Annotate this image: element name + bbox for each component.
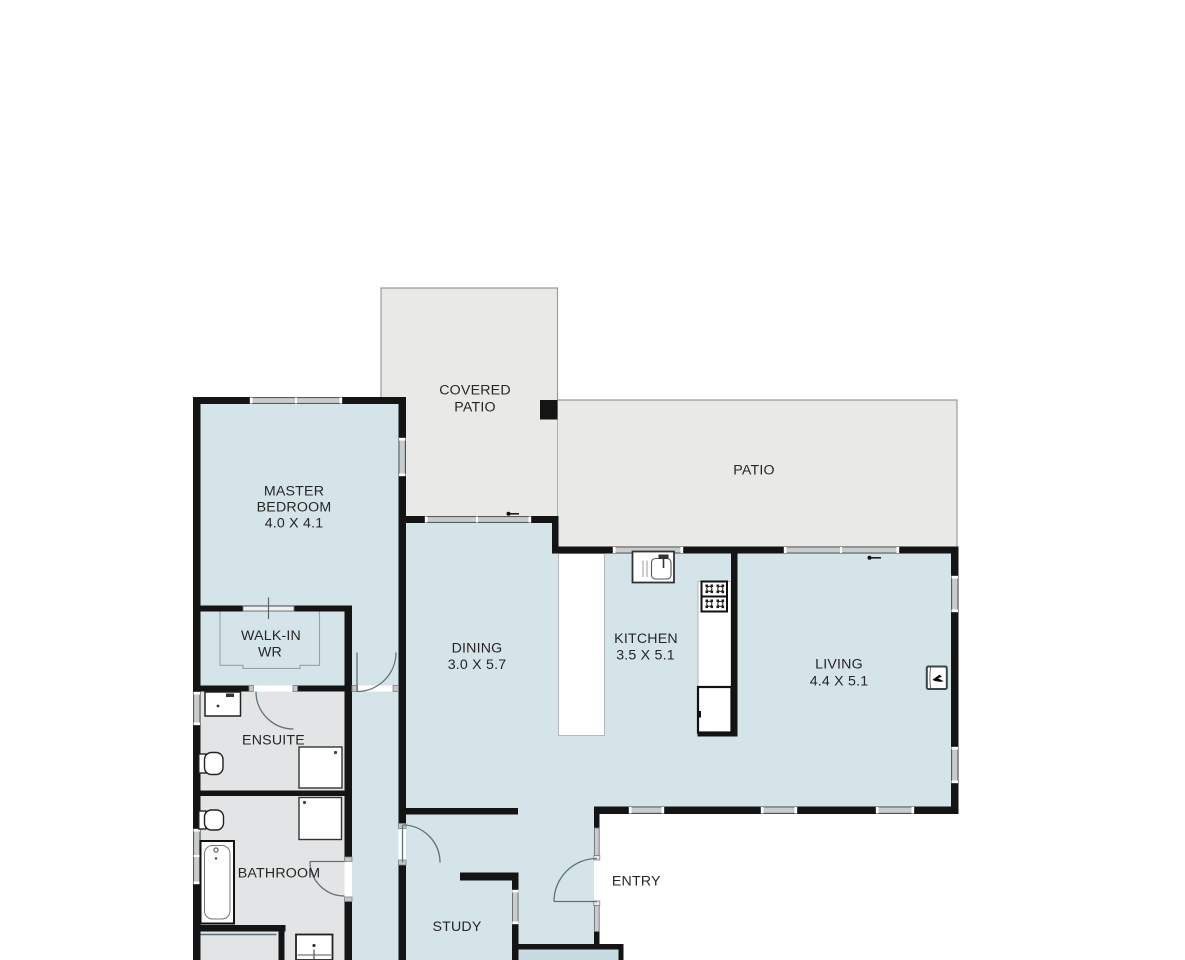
svg-text:PATIO: PATIO xyxy=(454,400,495,416)
svg-text:BATHROOM: BATHROOM xyxy=(238,866,321,882)
svg-text:4.4 X 5.1: 4.4 X 5.1 xyxy=(810,673,869,689)
svg-text:3.0 X 5.7: 3.0 X 5.7 xyxy=(448,657,507,673)
svg-text:PATIO: PATIO xyxy=(733,463,774,479)
svg-text:WALK-IN: WALK-IN xyxy=(241,628,301,644)
svg-text:WR: WR xyxy=(258,645,282,661)
svg-text:DINING: DINING xyxy=(452,641,503,657)
svg-text:ENSUITE: ENSUITE xyxy=(242,733,305,749)
svg-text:BEDROOM: BEDROOM xyxy=(257,499,332,515)
svg-text:MASTER: MASTER xyxy=(264,484,324,500)
svg-text:STUDY: STUDY xyxy=(432,919,481,935)
svg-text:3.5 X 5.1: 3.5 X 5.1 xyxy=(616,648,675,664)
svg-text:KITCHEN: KITCHEN xyxy=(614,631,678,647)
svg-text:ENTRY: ENTRY xyxy=(612,874,661,890)
svg-text:4.0 X 4.1: 4.0 X 4.1 xyxy=(265,516,324,532)
svg-text:COVERED: COVERED xyxy=(439,383,511,399)
svg-text:LIVING: LIVING xyxy=(815,657,863,673)
